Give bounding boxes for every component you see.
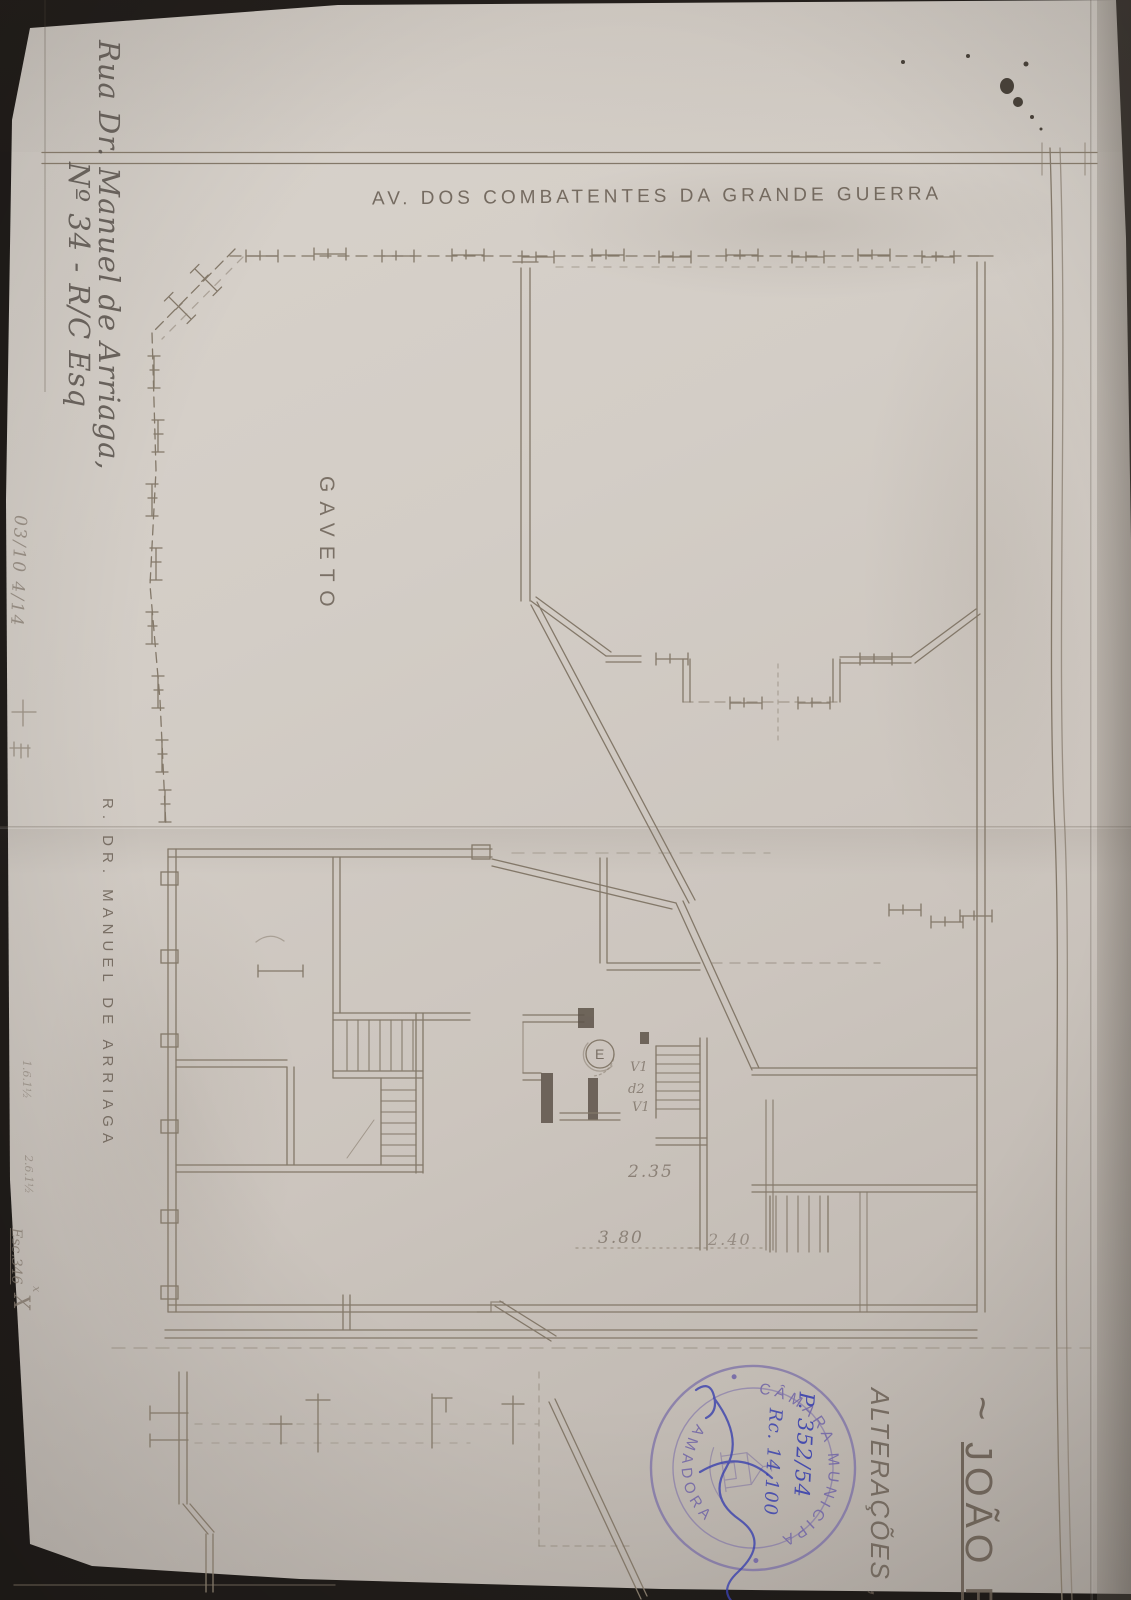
ground-floor-plan (161, 845, 992, 1312)
subtitle-alteracoes: ALTERAÇÕES , (864, 1388, 895, 1599)
room-label-window-bottom: V1 (632, 1100, 650, 1115)
corner-label-gaveto: GAVETO (314, 476, 338, 616)
plan-drawing: CÂMARA MUNICIPAL DA AMADORA (0, 0, 1131, 1600)
margin-scale-note: Esc.346 (8, 1228, 24, 1284)
margin-cross-marks (10, 700, 36, 758)
ink-blots (901, 54, 1043, 131)
room-label-entry: E (595, 1046, 604, 1062)
room-label-window-top: V1 (630, 1060, 648, 1075)
address-handwriting-line2: Nº 34 - R/C Esq (62, 162, 96, 408)
margin-mark-x: X (8, 1294, 33, 1310)
margin-note-top: 03/10 4/14 (6, 515, 30, 628)
dimension-room: 3.80 (598, 1228, 644, 1248)
title-tilde: ~ (958, 1396, 1006, 1421)
address-handwriting-line1: Rua Dr. Manuel de Arriaga, (92, 40, 126, 471)
dimension-stair: 2.40 (708, 1230, 752, 1249)
scanned-plan-photo: CÂMARA MUNICIPAL DA AMADORA AV. DOS COMB… (0, 0, 1131, 1600)
margin-mark-x-small: x (30, 1286, 43, 1292)
owner-name-title: JOÃO RIC (956, 1442, 999, 1600)
basement-partial-plan (14, 1295, 1090, 1599)
sheet-border (42, 143, 1097, 1600)
margin-note-2: 2.6.1½ (22, 1155, 35, 1194)
margin-note-1: 1.6.1½ (20, 1060, 33, 1099)
street-name-left: R. DR. MANUEL DE ARRIAGA (99, 798, 116, 1149)
roof-plan (146, 248, 993, 1312)
stamp-ring-bottom-text: AMADORA (671, 1420, 721, 1530)
room-label-door-mid: d2 (628, 1082, 645, 1097)
dimension-hall: 2.35 (628, 1162, 674, 1182)
